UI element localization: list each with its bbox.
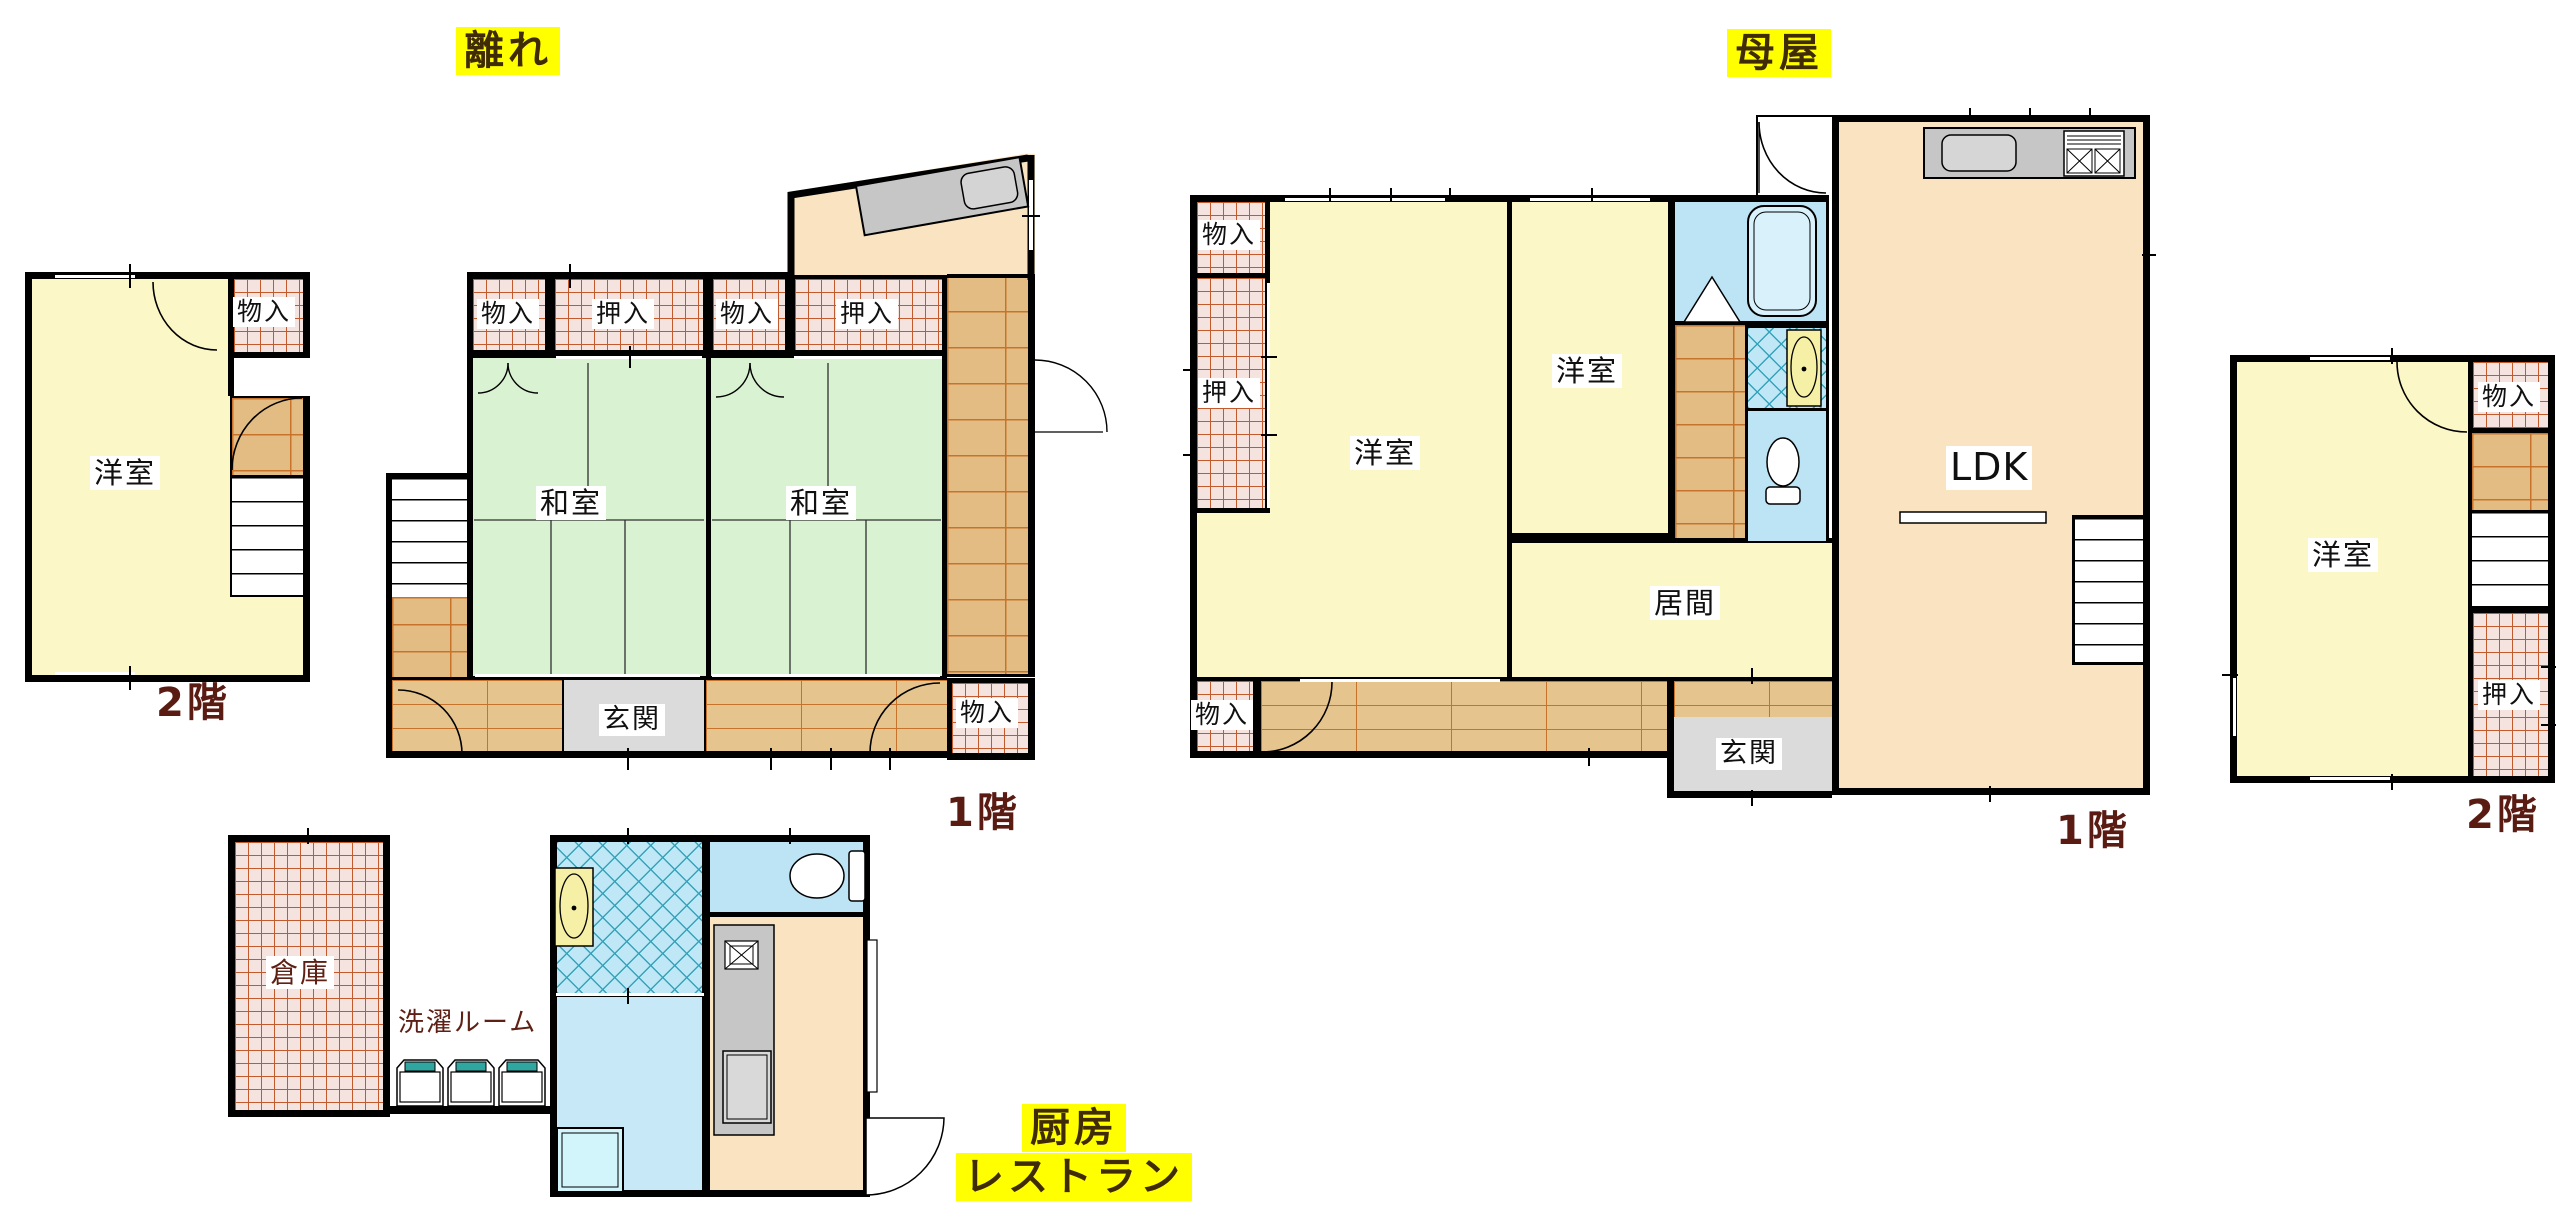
room-label-oshiire: 押入 — [1198, 378, 1260, 408]
omoya-1f-hall-brick — [1673, 325, 1745, 541]
room-label-monoiri: 物入 — [1191, 700, 1253, 730]
omoya-2f-landing — [2468, 433, 2555, 510]
annex-kitchen — [705, 917, 870, 1197]
omoya-1f-stairs — [2072, 515, 2143, 665]
omoya-1f-genkan-wood — [1667, 677, 1832, 717]
annex-chubo-label: 厨房 — [1022, 1104, 1126, 1152]
omoya-1f-wood-hall — [1258, 677, 1667, 758]
room-label-oshiire: 押入 — [836, 299, 898, 329]
omoya-1f-washroom — [1745, 325, 1829, 411]
room-label-sentaku: 洗濯ルーム — [394, 1008, 541, 1039]
omoya-title: 母屋 — [1727, 29, 1831, 77]
annex-bathroom — [550, 835, 705, 995]
room-label-yoshitsu: 洋室 — [90, 456, 160, 490]
room-label-monoiri: 物入 — [233, 297, 295, 327]
omoya-1f-bathroom — [1673, 195, 1829, 325]
room-label-oshiire: 押入 — [592, 299, 654, 329]
washing-machines — [397, 1060, 545, 1106]
room-label-genkan: 玄関 — [599, 704, 665, 736]
room-label-oshiire: 押入 — [2478, 680, 2540, 710]
room-label-monoiri: 物入 — [716, 299, 778, 329]
room-label-monoiri: 物入 — [2478, 382, 2540, 412]
annex-laundry-bottom-wall — [390, 1106, 550, 1114]
floor-plan-canvas: 離れ 母屋 洋室 物入 2階 物入 押入 物入 押入 和室 和室 玄関 物入 1… — [0, 0, 2556, 1228]
room-label-washitsu: 和室 — [536, 486, 606, 520]
omoya-1f-entry-notch — [1756, 115, 1832, 195]
hanare-1f-entry-left — [386, 677, 562, 758]
omoya-2f-floor-label: 2階 — [2462, 792, 2544, 838]
room-label-ldk: LDK — [1946, 446, 2032, 490]
annex-toilet-room — [705, 835, 870, 917]
hanare-1f-entry-right — [706, 677, 947, 758]
room-label-monoiri: 物入 — [956, 698, 1018, 728]
omoya-2f-stairs — [2468, 510, 2555, 608]
hanare-1f-floor-label: 1階 — [942, 790, 1024, 836]
room-label-souko: 倉庫 — [266, 956, 334, 989]
hanare-1f-hall-strip — [947, 275, 1035, 677]
hanare-2f-floor-label: 2階 — [152, 680, 234, 726]
room-label-genkan: 玄関 — [1716, 738, 1782, 770]
annex-restaurant-label: レストラン — [956, 1153, 1192, 1201]
room-label-yoshitsu: 洋室 — [1350, 436, 1420, 470]
hanare-1f-kitchenette — [788, 150, 1035, 275]
hanare-2f-landing — [230, 396, 310, 475]
door-arc-icon — [1035, 360, 1107, 432]
annex-bath-anteroom — [550, 995, 705, 1197]
room-label-monoiri: 物入 — [477, 299, 539, 329]
room-label-ima: 居間 — [1650, 586, 1720, 620]
hanare-2f-stairs — [230, 475, 310, 597]
room-label-monoiri: 物入 — [1198, 220, 1260, 250]
hanare-title: 離れ — [456, 27, 560, 75]
room-label-yoshitsu: 洋室 — [1552, 354, 1622, 388]
omoya-1f-toilet-room — [1745, 411, 1829, 541]
hanare-1f-stairs — [386, 473, 467, 597]
omoya-1f-floor-label: 1階 — [2052, 808, 2134, 854]
door-wedge — [866, 1118, 944, 1195]
hanare-1f-wood-landing — [386, 597, 467, 677]
room-label-yoshitsu: 洋室 — [2308, 538, 2378, 572]
room-label-washitsu: 和室 — [786, 486, 856, 520]
hanare-2f-recess — [228, 358, 310, 396]
